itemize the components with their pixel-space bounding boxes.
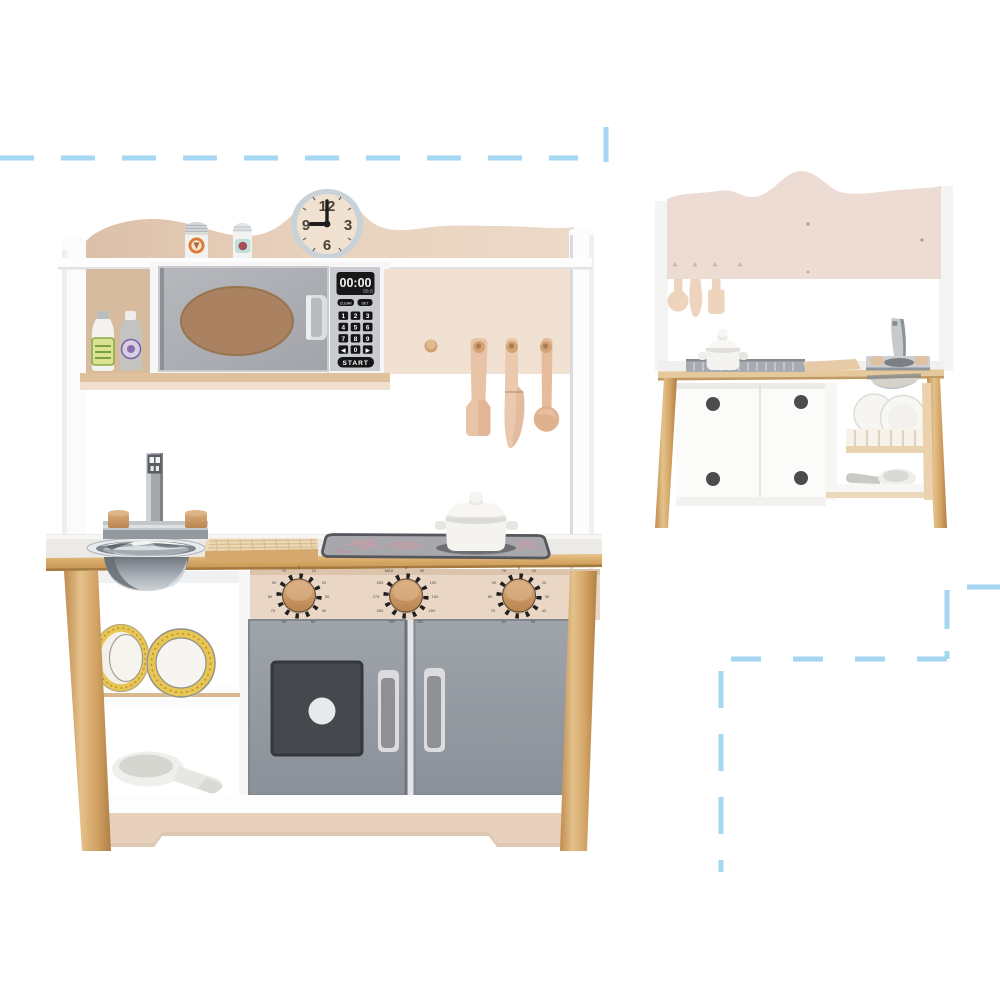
svg-text:200: 200 — [429, 608, 436, 613]
svg-text:7: 7 — [342, 336, 346, 343]
svg-text:50: 50 — [311, 619, 316, 624]
svg-text:SET: SET — [362, 301, 370, 305]
svg-text:◀: ◀ — [340, 348, 345, 354]
svg-text:50: 50 — [420, 568, 425, 573]
svg-text:70: 70 — [491, 608, 496, 613]
svg-text:250: 250 — [377, 608, 384, 613]
svg-text:6: 6 — [323, 237, 331, 254]
svg-text:00:00: 00:00 — [340, 276, 372, 290]
svg-text:50: 50 — [531, 619, 536, 624]
svg-text:70: 70 — [271, 608, 276, 613]
svg-text:1: 1 — [342, 313, 346, 320]
svg-text:5: 5 — [354, 325, 358, 332]
svg-text:9: 9 — [366, 336, 370, 343]
svg-text:40: 40 — [322, 608, 327, 613]
svg-text:MAX: MAX — [385, 568, 394, 573]
svg-text:30: 30 — [545, 594, 550, 599]
svg-text:60: 60 — [502, 619, 507, 624]
svg-text:88:8: 88:8 — [363, 289, 373, 295]
svg-text:70: 70 — [282, 568, 287, 573]
svg-text:90: 90 — [492, 580, 497, 585]
svg-text:4: 4 — [342, 325, 346, 332]
svg-text:20: 20 — [542, 580, 547, 585]
svg-text:20: 20 — [322, 580, 327, 585]
svg-text:250: 250 — [417, 619, 424, 624]
svg-text:2: 2 — [354, 313, 358, 320]
svg-text:8: 8 — [354, 336, 358, 343]
svg-text:▶: ▶ — [365, 348, 371, 354]
svg-text:80: 80 — [488, 594, 493, 599]
svg-text:3: 3 — [366, 313, 370, 320]
svg-text:40: 40 — [542, 608, 547, 613]
svg-text:9: 9 — [302, 217, 310, 234]
svg-text:10: 10 — [312, 568, 317, 573]
svg-text:CLEAR: CLEAR — [340, 301, 352, 305]
svg-text:90: 90 — [272, 580, 277, 585]
svg-text:300: 300 — [389, 619, 396, 624]
svg-text:6: 6 — [366, 325, 370, 332]
svg-text:10: 10 — [532, 568, 537, 573]
svg-text:START: START — [342, 360, 369, 367]
svg-text:60: 60 — [282, 619, 287, 624]
svg-text:80: 80 — [268, 594, 273, 599]
svg-text:275: 275 — [373, 594, 380, 599]
svg-text:0: 0 — [354, 347, 358, 354]
svg-text:100: 100 — [430, 580, 437, 585]
svg-text:3: 3 — [344, 217, 352, 234]
svg-text:150: 150 — [432, 594, 439, 599]
svg-text:250: 250 — [377, 580, 384, 585]
svg-text:30: 30 — [325, 594, 330, 599]
svg-text:70: 70 — [502, 568, 507, 573]
